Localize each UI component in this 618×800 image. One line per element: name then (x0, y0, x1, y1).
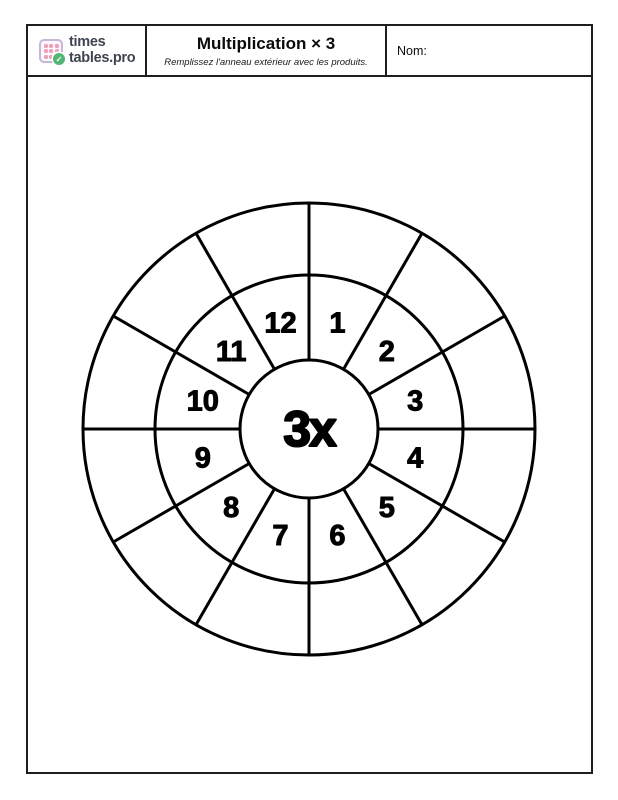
page-subtitle: Remplissez l'anneau extérieur avec les p… (164, 57, 368, 68)
logo-line2: tables.pro (69, 51, 135, 66)
check-badge-icon: ✓ (53, 53, 65, 65)
worksheet-page: { "page": { "background": "#ffffff", "bo… (0, 0, 618, 800)
name-section: Nom: (387, 26, 591, 75)
times-tables-grid-icon: ✓ (39, 39, 62, 62)
logo-line1: times (69, 35, 135, 50)
worksheet-header: ✓ times tables.pro Multiplication × 3 Re… (28, 26, 591, 77)
worksheet-frame: ✓ times tables.pro Multiplication × 3 Re… (26, 24, 593, 774)
worksheet-body (28, 77, 591, 772)
page-title: Multiplication × 3 (197, 34, 335, 54)
logo: ✓ times tables.pro (28, 26, 147, 75)
logo-wordmark: times tables.pro (69, 35, 135, 65)
title-section: Multiplication × 3 Remplissez l'anneau e… (147, 26, 387, 75)
name-label: Nom: (397, 44, 427, 58)
